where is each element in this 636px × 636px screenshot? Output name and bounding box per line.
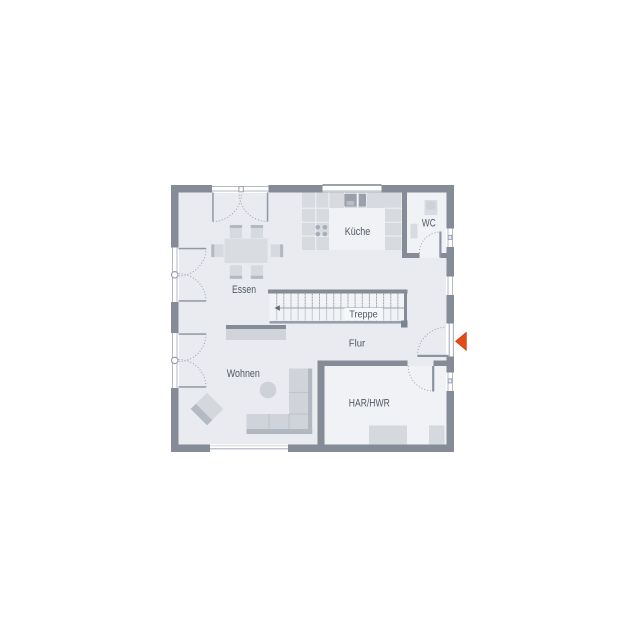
svg-text:Flur: Flur — [349, 338, 366, 350]
svg-text:WC: WC — [422, 218, 436, 230]
svg-text:Küche: Küche — [345, 226, 371, 238]
svg-text:Essen: Essen — [232, 284, 256, 296]
svg-text:HAR/HWR: HAR/HWR — [349, 398, 390, 410]
svg-text:Wohnen: Wohnen — [227, 368, 260, 380]
svg-text:Treppe: Treppe — [349, 309, 378, 320]
